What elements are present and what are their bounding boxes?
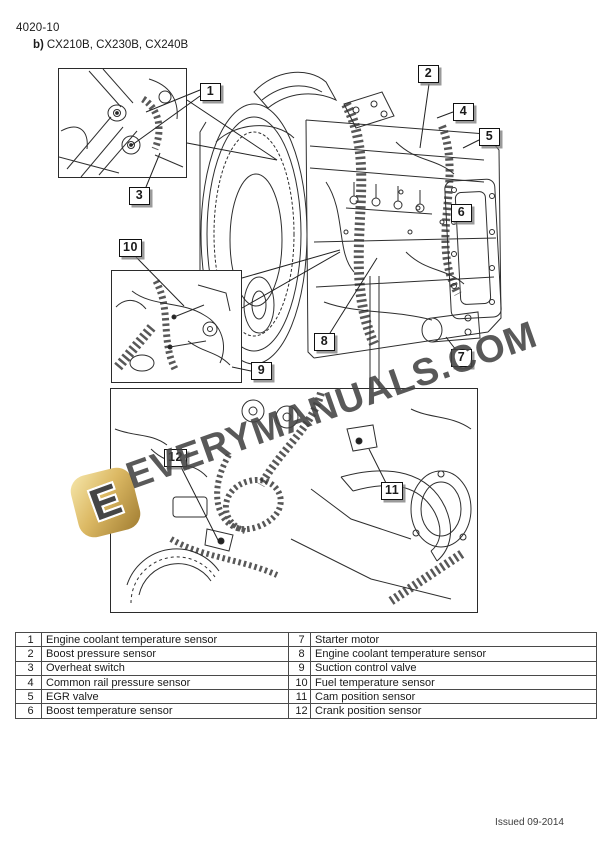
part-name-cell: Overheat switch	[42, 661, 289, 675]
part-name-cell: Boost temperature sensor	[42, 704, 289, 718]
detail-inset-2	[111, 270, 242, 383]
part-name-cell: Crank position sensor	[311, 704, 597, 718]
issued-date: Issued 09-2014	[495, 817, 564, 828]
callout-6: 6	[451, 204, 472, 222]
section-heading: b)CX210B, CX230B, CX240B	[33, 39, 188, 51]
section-label: b)	[33, 39, 44, 51]
callout-5: 5	[479, 128, 500, 146]
part-name-cell: Fuel temperature sensor	[311, 675, 597, 689]
callout-number-cell: 12	[289, 704, 311, 718]
callout-number-cell: 3	[16, 661, 42, 675]
legend-row: 3 Overheat switch 9 Suction control valv…	[16, 661, 597, 675]
section-models: CX210B, CX230B, CX240B	[47, 39, 188, 51]
callout-number-cell: 11	[289, 690, 311, 704]
callout-1: 1	[200, 83, 221, 101]
part-name-cell: EGR valve	[42, 690, 289, 704]
legend-row: 6 Boost temperature sensor 12 Crank posi…	[16, 704, 597, 718]
callout-number-cell: 4	[16, 675, 42, 689]
callout-number-cell: 9	[289, 661, 311, 675]
legend-table: 1 Engine coolant temperature sensor 7 St…	[15, 632, 597, 719]
callout-2: 2	[418, 65, 439, 83]
callout-number-cell: 7	[289, 633, 311, 647]
callout-11: 11	[381, 482, 403, 500]
callout-number-cell: 10	[289, 675, 311, 689]
callout-3: 3	[129, 187, 150, 205]
part-name-cell: Common rail pressure sensor	[42, 675, 289, 689]
legend-row: 2 Boost pressure sensor 8 Engine coolant…	[16, 647, 597, 661]
legend-row: 4 Common rail pressure sensor 10 Fuel te…	[16, 675, 597, 689]
legend-row: 1 Engine coolant temperature sensor 7 St…	[16, 633, 597, 647]
part-name-cell: Cam position sensor	[311, 690, 597, 704]
callout-number-cell: 1	[16, 633, 42, 647]
part-name-cell: Boost pressure sensor	[42, 647, 289, 661]
detail-inset-1	[58, 68, 187, 178]
callout-number-cell: 6	[16, 704, 42, 718]
part-name-cell: Engine coolant temperature sensor	[311, 647, 597, 661]
callout-number-cell: 5	[16, 690, 42, 704]
callout-number-cell: 2	[16, 647, 42, 661]
page-number: 4020-10	[16, 22, 60, 34]
callout-4: 4	[453, 103, 474, 121]
callout-number-cell: 8	[289, 647, 311, 661]
part-name-cell: Suction control valve	[311, 661, 597, 675]
part-name-cell: Engine coolant temperature sensor	[42, 633, 289, 647]
callout-8: 8	[314, 333, 335, 351]
everymanuals-logo-letter: E	[83, 474, 128, 531]
callout-9: 9	[251, 362, 272, 380]
callout-10: 10	[119, 239, 142, 257]
part-name-cell: Starter motor	[311, 633, 597, 647]
legend-row: 5 EGR valve 11 Cam position sensor	[16, 690, 597, 704]
manual-page: 4020-10 b)CX210B, CX230B, CX240B	[0, 0, 612, 866]
